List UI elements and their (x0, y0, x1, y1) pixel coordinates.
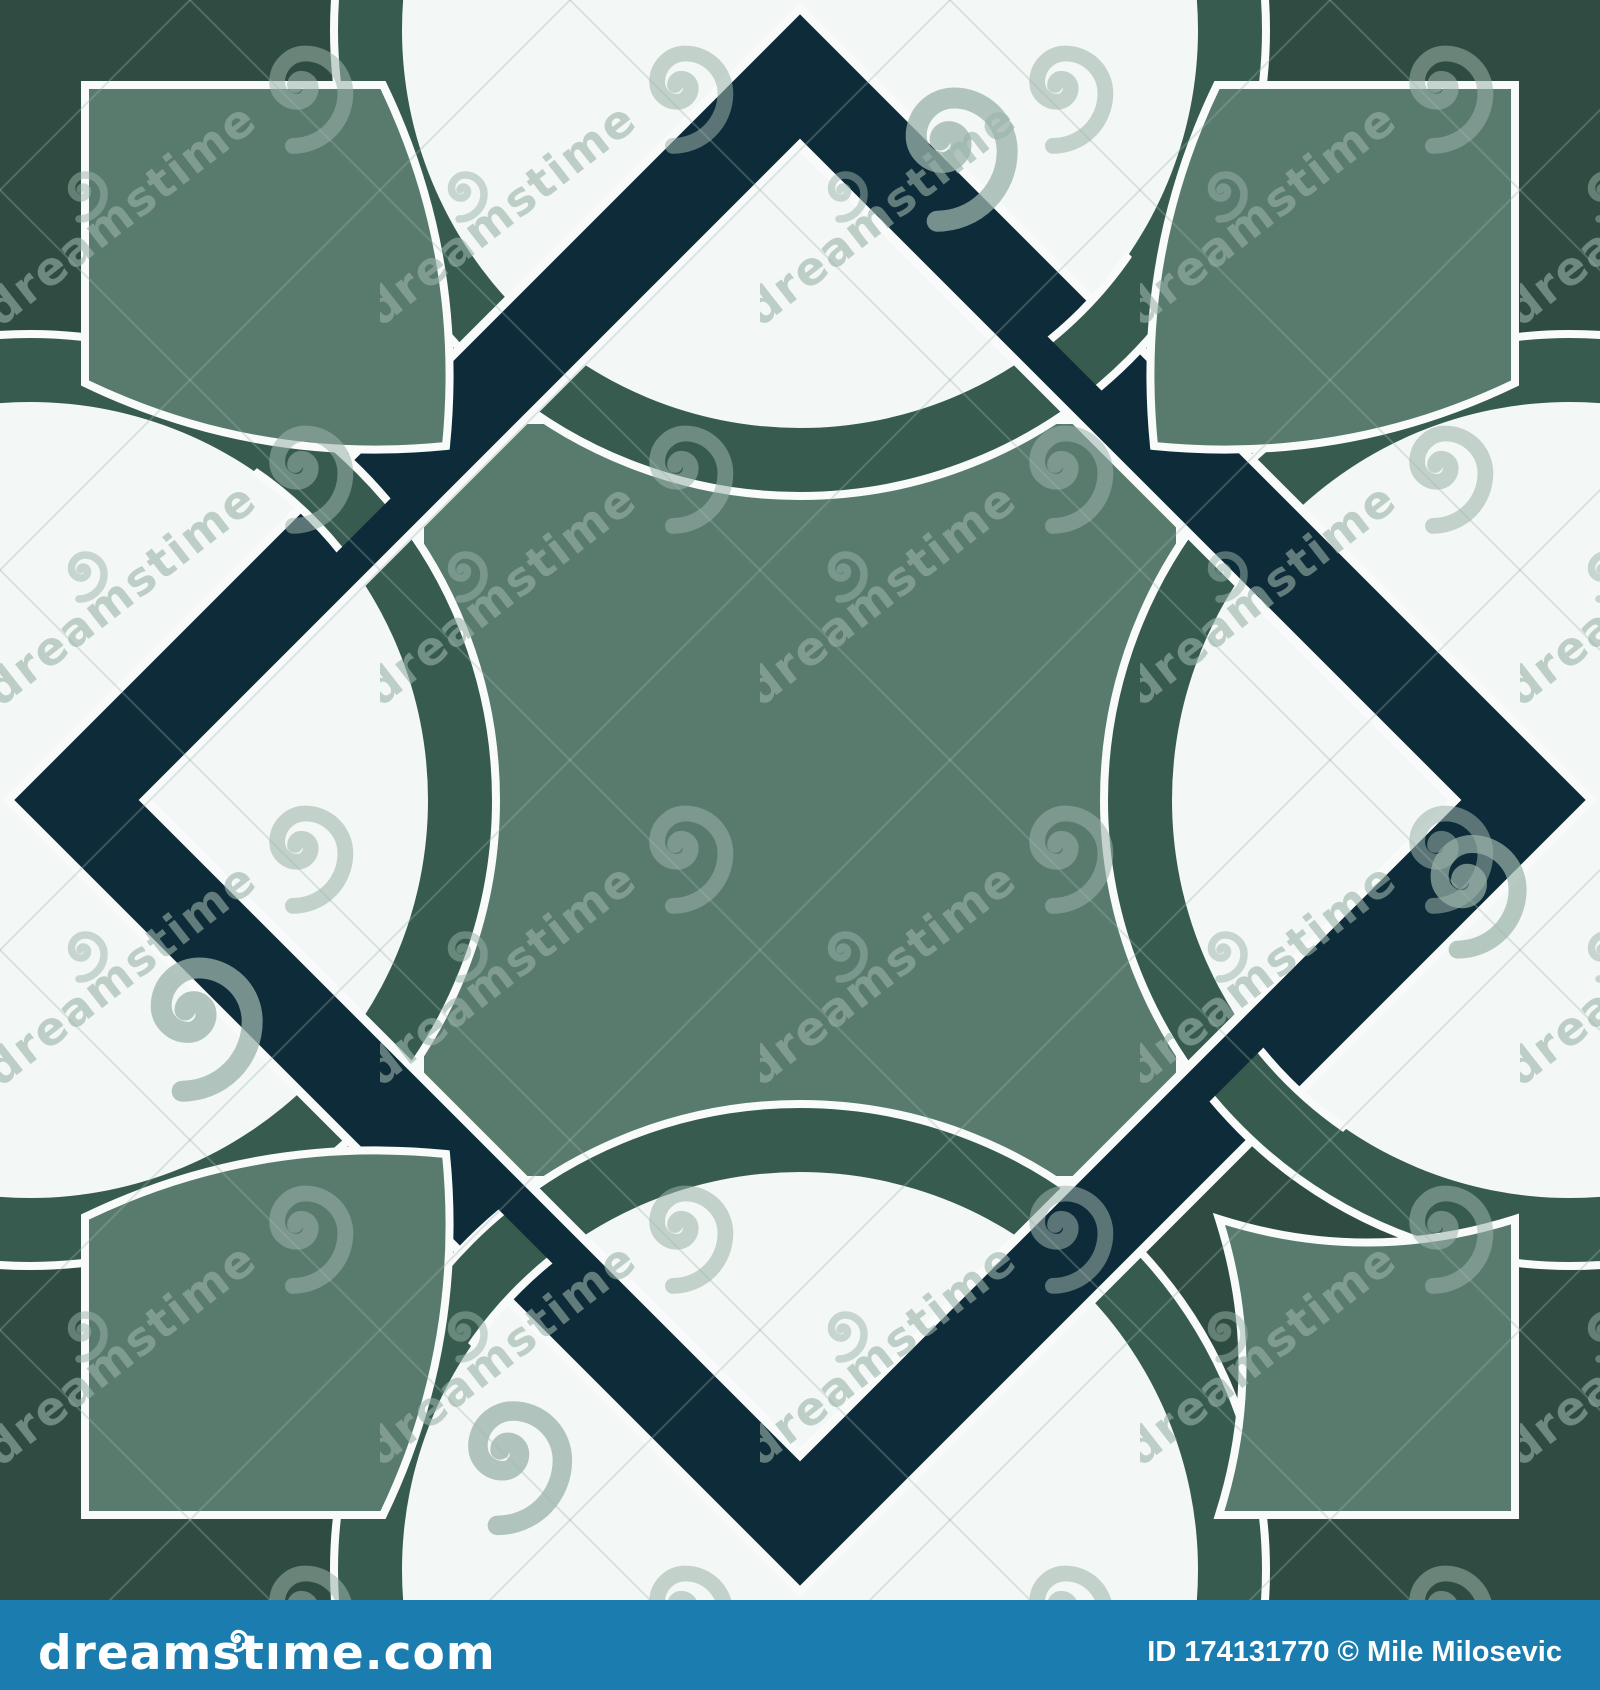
watermark-overlay (0, 0, 1600, 1600)
stock-image-page: dreamstime (0, 0, 1600, 1690)
stock-image-canvas: dreamstime (0, 0, 1600, 1690)
footer-bar: dreamstıme.com ID 174131770 © Mile Milos… (0, 1600, 1600, 1690)
pattern-artwork (0, 0, 1600, 1690)
brand-logo: dreamstıme.com (38, 1626, 496, 1681)
image-credit: ID 174131770 © Mile Milosevic (1147, 1636, 1562, 1668)
